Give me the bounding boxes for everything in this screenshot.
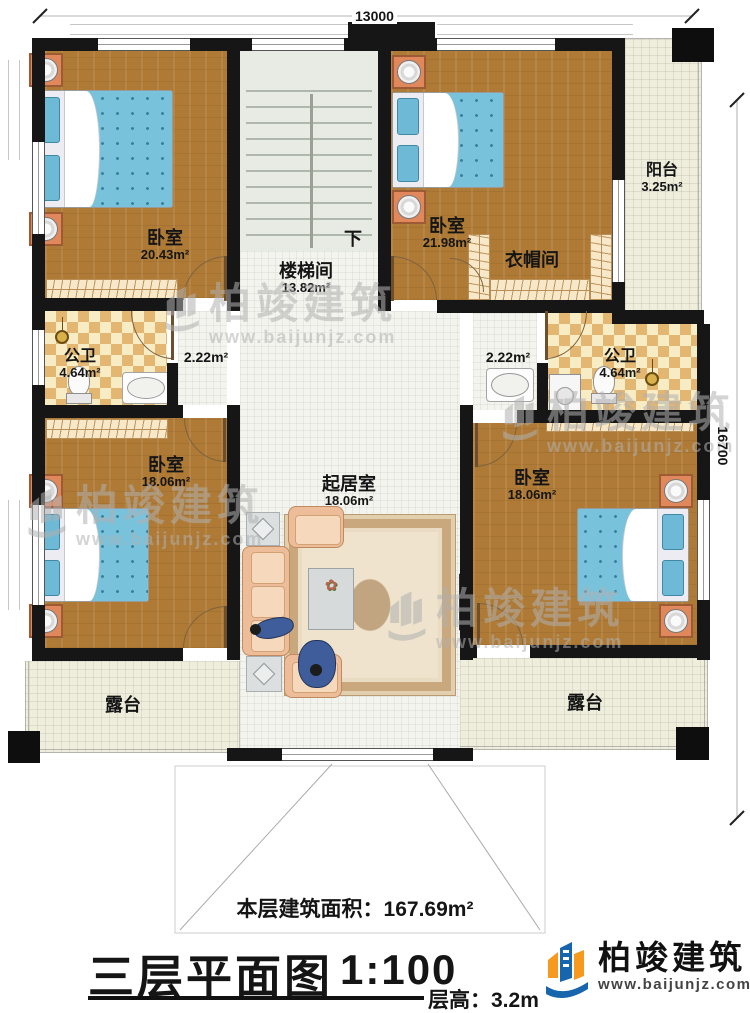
bed-mattress	[578, 509, 657, 601]
door-leaf	[477, 603, 480, 645]
room-label-bedroom-top-right: 卧室 21.98m²	[423, 216, 471, 251]
wall-segment	[167, 363, 178, 407]
room-area: 18.06m²	[322, 494, 376, 509]
bed-bottom-left	[33, 508, 149, 602]
room-name: 公卫	[599, 348, 640, 366]
wall-segment	[612, 310, 704, 324]
eave-line	[8, 500, 20, 610]
eave-line	[437, 24, 633, 35]
title-underline	[88, 996, 424, 1000]
wall-segment	[530, 645, 710, 658]
bed-sheet	[65, 91, 100, 207]
room-name: 公卫	[59, 348, 100, 366]
bed-sheet	[424, 93, 459, 187]
wall-segment	[460, 645, 477, 658]
wall-segment	[227, 748, 282, 761]
wall-segment	[517, 410, 697, 423]
room-area: 21.98m²	[423, 236, 471, 251]
nightstand	[659, 604, 693, 638]
room-label-bedroom-top-left: 卧室 20.43m²	[141, 228, 189, 263]
armchair-top	[288, 506, 344, 548]
bed-pillows	[393, 93, 424, 187]
room-name: 露台	[105, 695, 141, 715]
dimension-top: 13000	[352, 8, 397, 24]
corner-post	[676, 727, 709, 760]
wardrobe	[490, 279, 590, 301]
window	[282, 748, 433, 761]
bed-mattress	[65, 91, 172, 207]
nightstand	[392, 55, 426, 89]
floor-plan-page: 卧室 20.43m² 下 楼梯间 13.82m² 卧室 21.98m² 衣帽间 …	[0, 0, 750, 1013]
closet-strip	[46, 279, 178, 299]
bed-mattress	[424, 93, 503, 187]
ceiling-lamp	[55, 330, 69, 344]
bed-sheet	[622, 509, 657, 601]
brand-url: www.baijunjz.com	[598, 976, 750, 993]
ceiling-lamp	[645, 372, 659, 386]
door-leaf	[223, 418, 226, 462]
room-label-living: 起居室 18.06m²	[322, 474, 376, 509]
brand-name: 柏竣建筑	[598, 940, 750, 976]
room-label-terrace-left: 露台	[105, 695, 141, 715]
room-label-hall-left: 2.22m²	[184, 350, 228, 366]
room-name: 楼梯间	[279, 261, 333, 281]
side-table	[246, 512, 280, 546]
room-area: 13.82m²	[279, 281, 333, 296]
room-name: 卧室	[423, 216, 471, 236]
side-table	[246, 656, 282, 692]
room-area: 4.64m²	[599, 366, 640, 381]
eave-line	[70, 24, 348, 35]
bed-bottom-right	[577, 508, 689, 602]
wall-segment	[45, 405, 183, 418]
wall-segment	[612, 38, 625, 180]
washing-machine	[549, 374, 581, 414]
room-label-bedroom-bottom-right: 卧室 18.06m²	[508, 468, 556, 503]
coffee-table	[308, 568, 354, 630]
wall-segment	[32, 648, 183, 661]
window	[697, 500, 710, 600]
door-leaf	[224, 256, 227, 301]
wall-segment	[378, 38, 391, 311]
balcony-sliding-door	[612, 180, 625, 282]
stair-divider	[310, 94, 313, 248]
room-name: 卧室	[508, 468, 556, 488]
room-area: 20.43m²	[141, 248, 189, 263]
eave-line	[8, 60, 20, 160]
room-label-bathroom-left: 公卫 4.64m²	[59, 348, 100, 380]
room-name: 露台	[567, 693, 603, 713]
room-label-bedroom-bottom-left: 卧室 18.06m²	[142, 455, 190, 490]
stair-direction: 下	[344, 229, 362, 249]
room-name: 卧室	[141, 228, 189, 248]
door-leaf	[391, 256, 394, 301]
room-label-hall-right: 2.22m²	[486, 350, 530, 366]
window	[437, 38, 555, 51]
sink	[486, 368, 534, 402]
corner-post	[8, 731, 40, 763]
room-name: 起居室	[322, 474, 376, 494]
brand-logo-icon	[542, 940, 592, 1000]
bed-sheet	[65, 509, 100, 601]
corner-post	[672, 28, 714, 62]
door-leaf	[545, 311, 548, 360]
wall-segment	[697, 324, 710, 660]
stair-direction-label: 下	[344, 229, 362, 249]
wall-segment	[227, 38, 240, 311]
room-label-cloakroom: 衣帽间	[505, 250, 559, 270]
door-leaf	[171, 311, 174, 360]
wall-segment	[460, 405, 473, 660]
person-head	[250, 624, 261, 635]
bed-top-right	[392, 92, 504, 188]
room-name: 衣帽间	[505, 250, 559, 270]
window	[252, 38, 344, 51]
window	[98, 38, 190, 51]
room-name: 卧室	[142, 455, 190, 475]
bed-mattress	[65, 509, 148, 601]
wall-segment	[45, 298, 183, 311]
wall-segment	[537, 363, 548, 412]
room-area: 4.64m²	[59, 366, 100, 381]
person-head	[310, 664, 322, 676]
window	[32, 330, 45, 385]
wall-segment	[348, 22, 435, 38]
window	[32, 142, 45, 234]
wall-segment	[433, 748, 473, 761]
room-label-terrace-right: 露台	[567, 693, 603, 713]
room-label-bathroom-right: 公卫 4.64m²	[599, 348, 640, 380]
stair-treads	[246, 90, 372, 248]
room-area: 3.25m²	[641, 180, 682, 195]
brand-logo: 柏竣建筑 www.baijunjz.com	[542, 940, 750, 1000]
room-label-balcony: 阳台 3.25m²	[641, 162, 682, 194]
wardrobe	[590, 234, 612, 300]
door-leaf	[475, 423, 478, 467]
floor-height-note: 层高：3.2m	[428, 984, 539, 1013]
sofa	[242, 546, 290, 656]
sink	[122, 372, 170, 404]
window	[32, 505, 45, 605]
bed-pillows	[657, 509, 688, 601]
room-area: 2.22m²	[184, 350, 228, 366]
room-label-stairwell: 楼梯间 13.82m²	[279, 261, 333, 296]
room-name: 阳台	[641, 162, 682, 180]
bed-top-left	[33, 90, 173, 208]
door-leaf	[224, 606, 227, 648]
nightstand	[392, 190, 426, 224]
wall-segment	[227, 405, 240, 660]
room-area: 2.22m²	[486, 350, 530, 366]
room-area: 18.06m²	[508, 488, 556, 503]
closet-strip	[46, 419, 168, 439]
floor-area-note: 本层建筑面积：167.69m²	[237, 893, 474, 923]
dimension-right: 16700	[715, 415, 731, 477]
room-area: 18.06m²	[142, 475, 190, 490]
nightstand	[659, 474, 693, 508]
